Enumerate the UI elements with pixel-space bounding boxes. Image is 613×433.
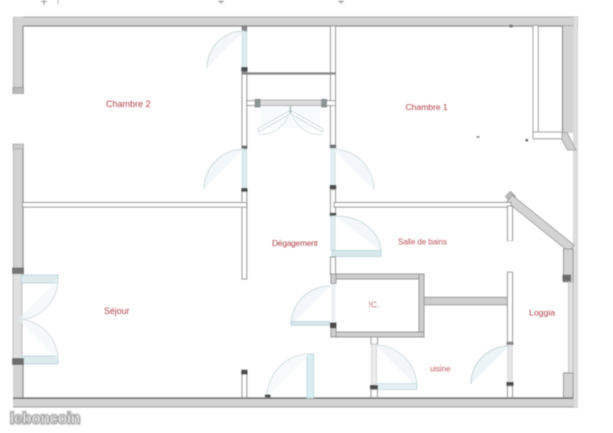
svg-text:uisine: uisine — [430, 365, 451, 374]
svg-text:Chambre 2: Chambre 2 — [106, 99, 151, 109]
svg-text:Salle de bains: Salle de bains — [398, 238, 447, 247]
svg-text:leboncoin: leboncoin — [10, 411, 80, 428]
svg-text:Chambre 1: Chambre 1 — [406, 102, 448, 112]
svg-text:Séjour: Séjour — [104, 306, 129, 316]
svg-text:Loggia: Loggia — [529, 308, 555, 318]
svg-text:Dégagement: Dégagement — [272, 238, 318, 248]
svg-text:!C.: !C. — [369, 300, 380, 310]
